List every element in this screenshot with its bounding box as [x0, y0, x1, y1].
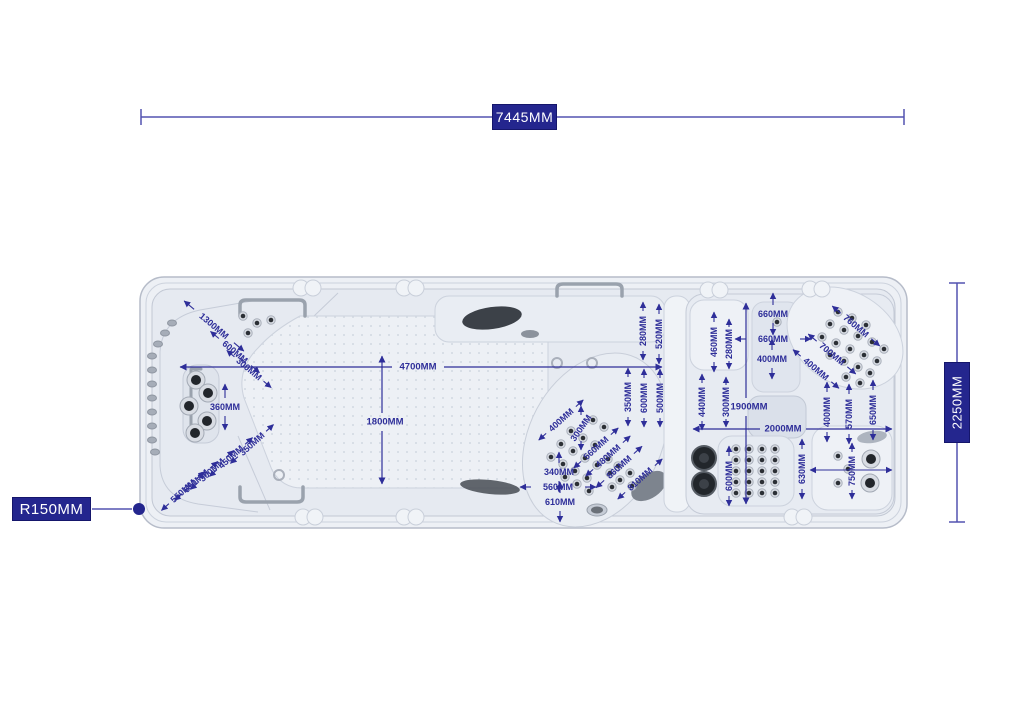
dimension-label: 340MM [544, 467, 574, 477]
corner-radius-value: R150MM [20, 501, 84, 518]
jet-nozzle [820, 335, 825, 340]
jet-nozzle [842, 328, 847, 333]
right-seat-top-left [690, 300, 748, 370]
jet-nozzle [734, 469, 739, 474]
side-jet [148, 437, 157, 443]
jet-nozzle [875, 359, 880, 364]
jet-nozzle [828, 322, 833, 327]
dimension-label: 460MM [709, 327, 719, 357]
jet-nozzle [760, 458, 765, 463]
jet-nozzle [246, 331, 251, 336]
jet-nozzle [585, 476, 590, 481]
jet-nozzle [775, 320, 780, 325]
dimension-label: 660MM [758, 309, 788, 319]
large-jet-nozzle [202, 416, 212, 426]
spa-body [140, 266, 922, 552]
dimension-label: 400MM [757, 354, 787, 364]
large-jet-nozzle [184, 401, 194, 411]
dimension-label: 360MM [210, 402, 240, 412]
jet-nozzle [734, 480, 739, 485]
jet-nozzle [848, 347, 853, 352]
jet-nozzle [559, 442, 564, 447]
side-jet [148, 395, 157, 401]
speaker-center [699, 453, 709, 463]
side-jet [161, 330, 170, 336]
jet-nozzle [747, 458, 752, 463]
dimension-label: 650MM [868, 395, 878, 425]
jet-nozzle [773, 491, 778, 496]
floor-drain-center [591, 507, 603, 514]
jet-nozzle [760, 480, 765, 485]
jet-nozzle [734, 458, 739, 463]
large-jet-nozzle [865, 478, 875, 488]
dimension-label: 400MM [822, 397, 832, 427]
jet-nozzle [587, 489, 592, 494]
right-length-label: 2000MM [765, 424, 802, 435]
jet-nozzle [844, 375, 849, 380]
jet-nozzle [571, 449, 576, 454]
jet-nozzle [628, 471, 633, 476]
dimension-label: 280MM [638, 316, 648, 346]
dimension-label: 560MM [543, 482, 573, 492]
jet-nozzle [882, 347, 887, 352]
dimension-label: 520MM [654, 319, 664, 349]
side-jet [151, 449, 160, 455]
dimension-label: 570MM [844, 399, 854, 429]
jet-nozzle [747, 447, 752, 452]
jet-nozzle [760, 491, 765, 496]
jet-nozzle [856, 365, 861, 370]
jet-nozzle [773, 469, 778, 474]
overall-width-value: 2250MM [950, 376, 965, 430]
jet-nozzle [269, 318, 274, 323]
large-jet-nozzle [866, 454, 876, 464]
swim-length-label: 4700MM [400, 362, 437, 373]
dimension-label: 500MM [655, 383, 665, 413]
overall-width-badge: 2250MM [944, 362, 970, 443]
radius-anchor-dot [133, 503, 145, 515]
overall-length-badge: 7445MM [492, 104, 557, 130]
dimension-label: 610MM [545, 497, 575, 507]
dimension-label: 600MM [639, 383, 649, 413]
jet-nozzle [618, 478, 623, 483]
swim-spa-dimension-diagram: 4700MM 1800MM 1900MM 2000MM 1300MM600MM3… [0, 0, 1024, 724]
swim-width-label: 1800MM [367, 417, 404, 428]
jet-nozzle [858, 381, 863, 386]
jet-nozzle [836, 481, 841, 486]
overall-length-value: 7445MM [496, 109, 553, 125]
jet-nozzle [862, 353, 867, 358]
jet-nozzle [760, 469, 765, 474]
large-jet-nozzle [203, 388, 213, 398]
dimension-label: 300MM [721, 387, 731, 417]
side-jet [148, 353, 157, 359]
dimension-label: 600MM [724, 461, 734, 491]
jet-nozzle [868, 371, 873, 376]
jet-nozzle [581, 436, 586, 441]
jet-nozzle [561, 462, 566, 467]
small-vent [521, 330, 539, 338]
jet-nozzle [734, 447, 739, 452]
jet-nozzle [760, 447, 765, 452]
side-jet [148, 423, 157, 429]
speaker-center [699, 479, 709, 489]
jet-nozzle [747, 491, 752, 496]
corner-radius-badge: R150MM [12, 497, 91, 521]
side-jet [154, 341, 163, 347]
dimension-label: 440MM [697, 387, 707, 417]
dimension-label: 660MM [758, 334, 788, 344]
side-jet [148, 381, 157, 387]
jet-nozzle [549, 455, 554, 460]
jet-nozzle [836, 454, 841, 459]
dimension-label: 750MM [847, 456, 857, 486]
side-jet [148, 409, 157, 415]
side-jet [168, 320, 177, 326]
jet-nozzle [773, 447, 778, 452]
jet-nozzle [747, 469, 752, 474]
dimension-label: 630MM [797, 454, 807, 484]
jet-nozzle [255, 321, 260, 326]
jet-nozzle [241, 314, 246, 319]
dimension-label: 280MM [724, 329, 734, 359]
large-jet-nozzle [190, 428, 200, 438]
jet-nozzle [602, 425, 607, 430]
dimension-label: 350MM [623, 382, 633, 412]
jet-nozzle [575, 482, 580, 487]
large-jet-nozzle [191, 375, 201, 385]
jet-nozzle [610, 485, 615, 490]
jet-nozzle [734, 491, 739, 496]
jet-nozzle [834, 341, 839, 346]
jet-nozzle [773, 458, 778, 463]
right-width-label: 1900MM [731, 402, 768, 413]
jet-nozzle [747, 480, 752, 485]
jet-nozzle [773, 480, 778, 485]
side-jet [148, 367, 157, 373]
